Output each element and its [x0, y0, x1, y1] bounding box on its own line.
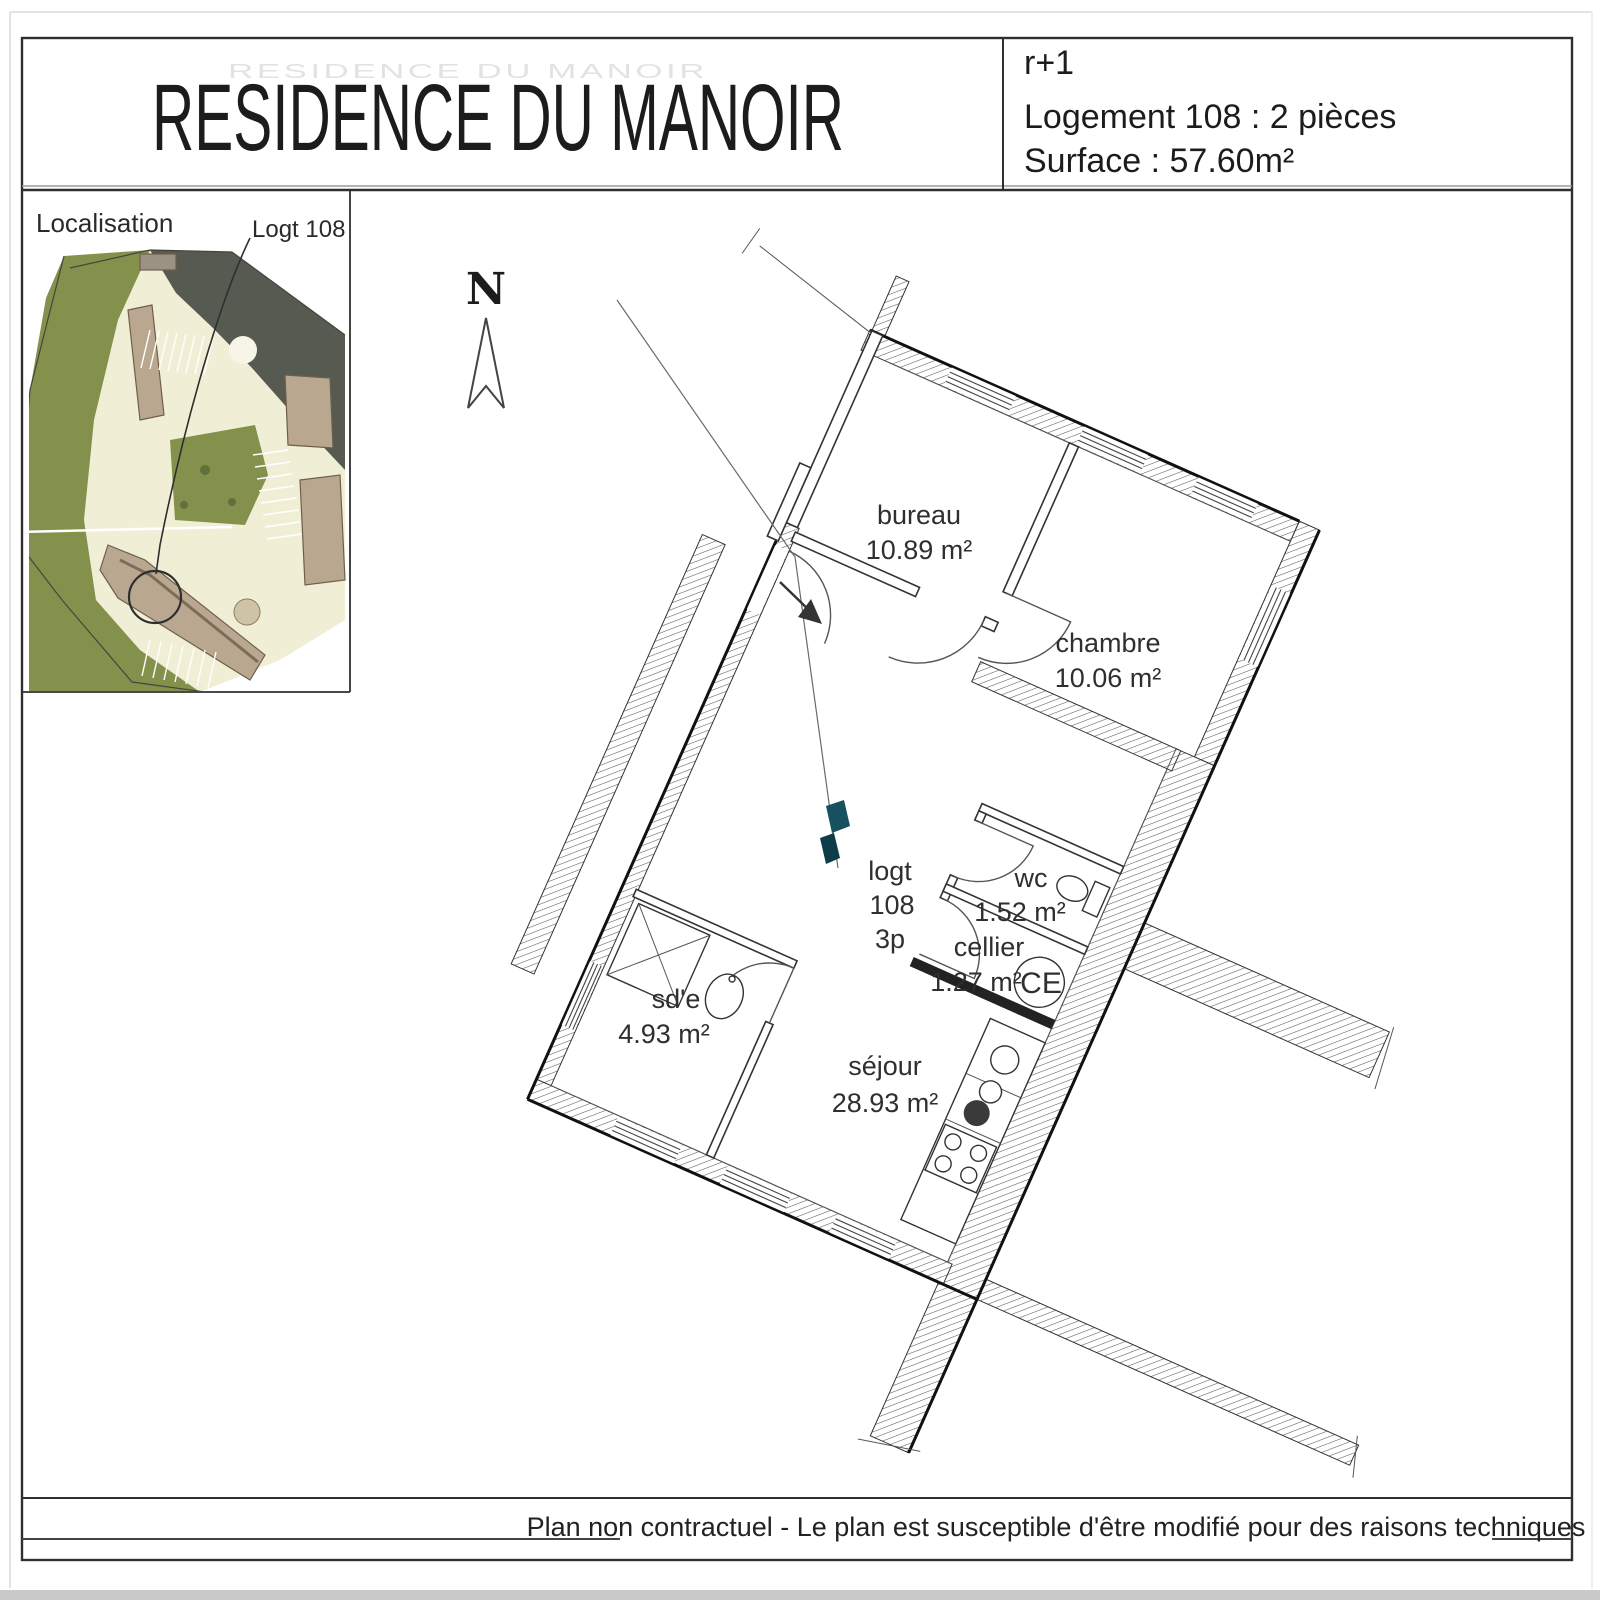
wall-left-top-extension	[872, 276, 909, 337]
site-bush	[234, 599, 260, 625]
wall-sde-right	[706, 1021, 773, 1158]
unit-label: Logement 108 : 2 pièces	[1024, 98, 1396, 136]
entry-opening	[747, 545, 788, 615]
area-label-bureau: 10.89 m²	[866, 535, 973, 565]
floor-plan	[321, 215, 1600, 1600]
page-title: RESIDENCE DU MANOIR	[152, 65, 844, 171]
area-label-sde: 4.93 m²	[618, 1019, 710, 1049]
window-sde-left	[562, 961, 603, 1031]
site-roof-notch	[229, 336, 257, 364]
site-map	[16, 250, 345, 692]
wall-cut-tick	[742, 226, 760, 256]
north-arrow-icon	[468, 318, 504, 408]
unit-tag-line3: 3p	[875, 924, 905, 954]
entry-arrow-icon	[780, 582, 822, 624]
wall-wc-left-a	[975, 811, 986, 823]
plan-drawing: RESIDENCE DU MANOIR RESIDENCE DU MANOIR …	[0, 0, 1600, 1600]
door-arc-bureau	[889, 591, 984, 686]
window-bottom-3	[829, 1214, 897, 1259]
unit-tag-line2: 108	[869, 890, 914, 920]
site-tree	[180, 501, 188, 509]
party-wall-band	[1124, 923, 1389, 1078]
room-label-bureau: bureau	[877, 500, 961, 530]
floor-label: r+1	[1024, 44, 1074, 82]
window-top-3	[1190, 477, 1258, 522]
washbasin	[699, 968, 751, 1025]
wall-bureau-chambre	[1003, 443, 1078, 596]
site-building-topright	[285, 375, 333, 448]
site-tree	[228, 498, 236, 506]
north-label: N	[466, 264, 506, 315]
unit-tag-line1: logt	[868, 856, 912, 886]
room-label-chambre: chambre	[1055, 628, 1160, 658]
marker-label: Logt 108	[252, 216, 345, 243]
room-label-wc: wc	[1014, 863, 1048, 893]
wall-bureau-bottom-b	[981, 617, 998, 632]
footer-disclaimer: Plan non contractuel - Le plan est susce…	[527, 1512, 1586, 1542]
room-label-sde: sd'e	[652, 984, 701, 1014]
room-label-cellier: cellier	[954, 932, 1025, 962]
plan-sheet: RESIDENCE DU MANOIR RESIDENCE DU MANOIR …	[0, 0, 1600, 1600]
wall-wc-top	[979, 804, 1124, 874]
page-edges	[0, 12, 1600, 1600]
surface-label: Surface : 57.60m²	[1024, 142, 1294, 180]
wall-bureau-left	[786, 331, 882, 528]
door-leaf-teal	[826, 800, 850, 833]
site-building-right	[300, 475, 345, 585]
area-label-cellier: 1.27 m²	[930, 967, 1022, 997]
area-label-wc: 1.52 m²	[974, 897, 1066, 927]
localisation-label: Localisation	[36, 208, 173, 238]
area-label-chambre: 10.06 m²	[1055, 663, 1162, 693]
wall-bottom-extension	[977, 1279, 1359, 1465]
document-frame	[22, 38, 1572, 1560]
water-heater-label: CE	[1020, 967, 1062, 1000]
wall-cut-line	[746, 246, 883, 332]
area-label-sejour: 28.93 m²	[832, 1088, 939, 1118]
section-line	[617, 300, 838, 868]
site-tree	[200, 465, 210, 475]
room-label-sejour: séjour	[848, 1051, 922, 1081]
site-building-top-small	[140, 254, 176, 270]
